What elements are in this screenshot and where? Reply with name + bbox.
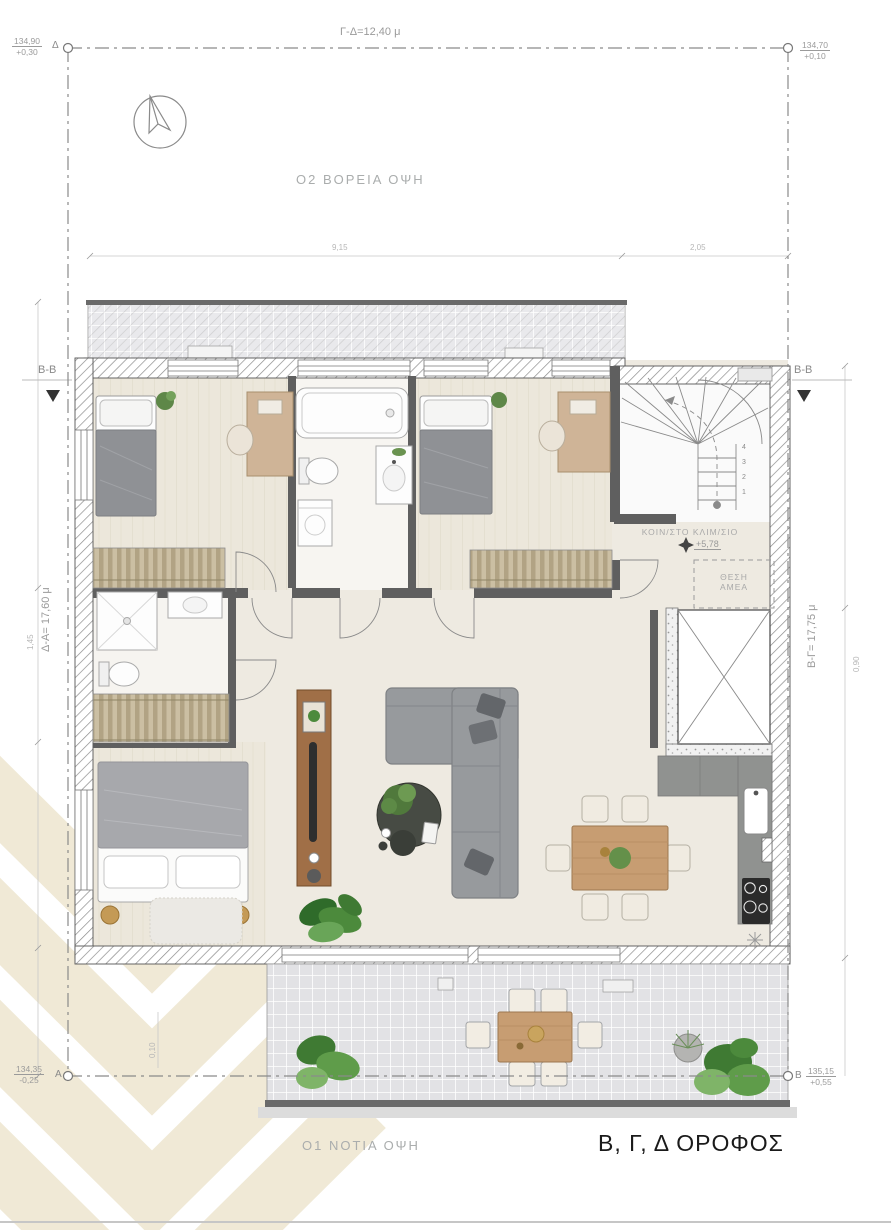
plant xyxy=(392,448,406,456)
terrace-label-box xyxy=(438,978,453,990)
boundary-left-length: Δ-Α= 17,60 μ xyxy=(40,587,52,652)
survey-point-bottom-right: 135,15 +0,55 xyxy=(806,1066,836,1087)
outdoor-chair xyxy=(578,1022,602,1048)
stairwell-label: ΚΟΙΝ/ΣΤΟ ΚΛΙΜ/ΣΙΟ xyxy=(625,527,755,537)
corner-point-bottom-left xyxy=(64,1072,73,1081)
top-dimension-1: 9,15 xyxy=(332,243,348,252)
toilet xyxy=(99,662,139,686)
survey-point-bottom-left: 134,35 -0,25 xyxy=(14,1064,44,1085)
dining-chair xyxy=(666,845,690,871)
accessible-spot-line2: ΑΜΕΑ xyxy=(700,582,768,592)
elevation-value: 134,35 xyxy=(14,1064,44,1075)
offset-value: +0,30 xyxy=(12,47,42,57)
sliding-door xyxy=(282,948,468,962)
south-elevation-label: Ο1 ΝΟΤΙΑ ΟΨΗ xyxy=(302,1138,420,1153)
offset-value: -0,25 xyxy=(14,1075,44,1085)
double-bed xyxy=(98,762,248,902)
terrace-label-box xyxy=(188,346,232,358)
dining-chair xyxy=(582,796,608,822)
desk-chair xyxy=(539,421,565,451)
terrace-label-box xyxy=(603,980,633,992)
stair-label-box xyxy=(738,368,772,381)
rug xyxy=(150,898,242,944)
pillow xyxy=(104,856,168,888)
outdoor-chair xyxy=(509,1062,535,1086)
dining-chair xyxy=(622,894,648,920)
elevation-value: 134,70 xyxy=(800,40,830,51)
window xyxy=(75,430,93,500)
section-label-right: B-B xyxy=(794,364,812,376)
section-cut-icon xyxy=(46,390,60,402)
step-number: 3 xyxy=(742,459,746,466)
step-number: 4 xyxy=(742,444,746,451)
accessible-spot-label: ΘΕΣΗ ΑΜΕΑ xyxy=(700,572,768,592)
section-cut-icon xyxy=(797,390,811,402)
boundary-top-length: Γ-Δ=12,40 μ xyxy=(340,26,400,38)
terrace-dimension: 0,10 xyxy=(148,1042,157,1058)
floor-title: Β, Γ, Δ ΟΡΟΦΟΣ xyxy=(598,1130,784,1157)
right-dimension: 0,90 xyxy=(852,656,861,672)
outdoor-chair xyxy=(509,989,535,1013)
dining-chair xyxy=(622,796,648,822)
soundbar xyxy=(309,742,317,842)
potted-plant xyxy=(491,392,507,408)
window xyxy=(298,360,410,376)
elevation-value: 134,90 xyxy=(12,36,42,47)
dining-chair xyxy=(582,894,608,920)
window xyxy=(424,360,488,376)
survey-letter: Δ xyxy=(52,40,59,51)
floor-plan-drawing: 4 3 2 1 xyxy=(0,0,891,1230)
offset-value: +0,10 xyxy=(800,51,830,61)
elevator-shaft xyxy=(666,608,772,756)
survey-point-top-right: 134,70 +0,10 xyxy=(800,40,830,61)
window xyxy=(75,790,93,890)
dining-chair xyxy=(546,845,570,871)
terrace-railing xyxy=(86,300,627,305)
left-dimension: 1,45 xyxy=(26,634,35,650)
single-bed xyxy=(420,396,492,514)
outdoor-chair xyxy=(541,989,567,1013)
centerpiece-plant xyxy=(609,847,631,869)
wardrobe xyxy=(93,548,225,588)
north-terrace xyxy=(86,300,627,360)
toilet xyxy=(299,458,338,484)
survey-letter: B xyxy=(795,1070,802,1081)
outdoor-chair xyxy=(541,1062,567,1086)
survey-point-top-left: 134,90 +0,30 xyxy=(12,36,42,57)
floor-plan-sheet: 4 3 2 1 xyxy=(0,0,891,1230)
sheet-divider xyxy=(0,1221,891,1223)
terrace-label-box xyxy=(505,348,543,358)
corner-point-top-right xyxy=(784,44,793,53)
shower-tray xyxy=(97,592,157,650)
bedside-lamp xyxy=(101,906,119,924)
terrace-railing xyxy=(265,1100,790,1107)
single-bed xyxy=(96,396,156,516)
wardrobe xyxy=(93,694,229,742)
stairwell-floor xyxy=(620,376,772,522)
desk-chair xyxy=(227,425,253,455)
corner-point-top-left xyxy=(64,44,73,53)
south-terrace xyxy=(258,964,797,1118)
top-dimension-2: 2,05 xyxy=(690,243,706,252)
sliding-door xyxy=(478,948,620,962)
corner-point-bottom-right xyxy=(784,1072,793,1081)
wardrobe xyxy=(470,550,612,588)
washbasin xyxy=(376,446,412,504)
tv-console xyxy=(297,690,331,886)
washbasin xyxy=(168,592,222,618)
boundary-right-length: Β-Γ= 17,75 μ xyxy=(806,605,818,668)
step-number: 1 xyxy=(742,489,746,496)
north-elevation-label: Ο2 ΒΟΡΕΙΑ ΟΨΗ xyxy=(296,172,425,187)
kitchen-vent-icon xyxy=(747,932,763,948)
window xyxy=(552,360,610,376)
step-number: 2 xyxy=(742,474,746,481)
outdoor-chair xyxy=(466,1022,490,1048)
survey-letter: A xyxy=(55,1069,62,1080)
pillow xyxy=(176,856,240,888)
window xyxy=(168,360,238,376)
stairwell-level: +5,78 xyxy=(694,539,721,550)
cooktop xyxy=(742,878,770,924)
offset-value: +0,55 xyxy=(806,1077,836,1087)
washing-machine xyxy=(298,500,332,546)
accessible-spot-line1: ΘΕΣΗ xyxy=(700,572,768,582)
section-label-left: B-B xyxy=(38,364,56,376)
elevation-value: 135,15 xyxy=(806,1066,836,1077)
north-arrow-icon xyxy=(134,96,186,148)
